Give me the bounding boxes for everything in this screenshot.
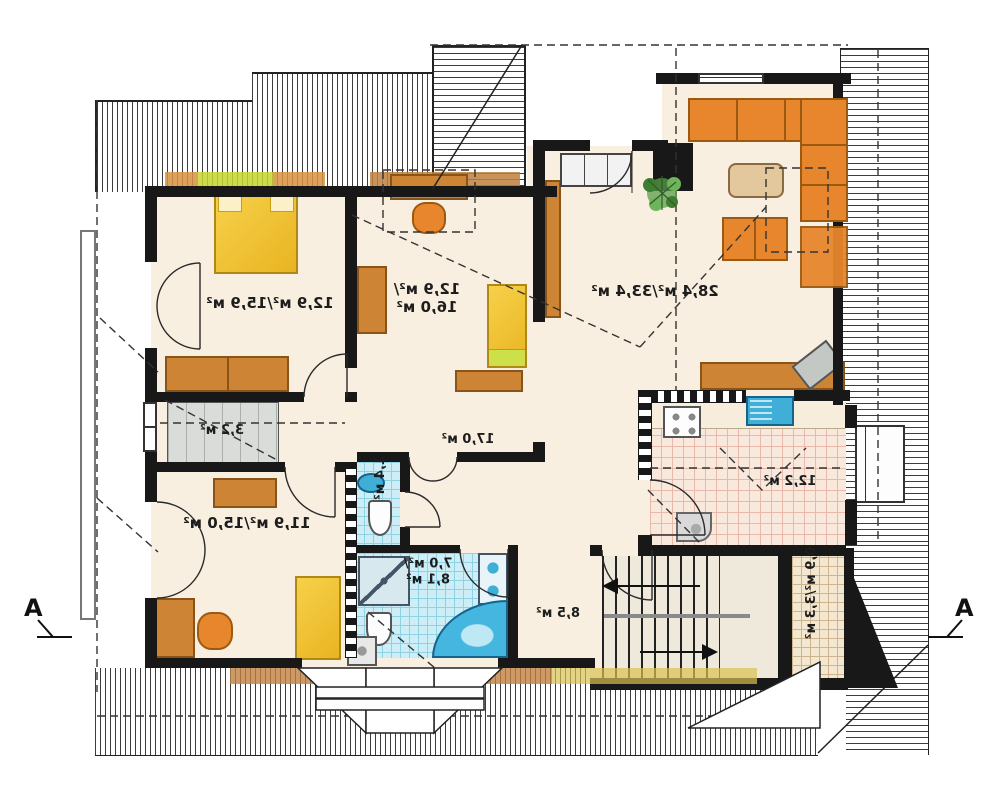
label-line: 8,1 м² <box>406 572 450 587</box>
double-bed <box>214 192 298 274</box>
coffee-table <box>728 163 784 198</box>
wall <box>400 527 410 553</box>
window-living-top <box>698 73 764 84</box>
roof-hatch-bottom-right <box>846 545 929 755</box>
room-label-hall: 17,0 м² <box>442 432 495 448</box>
sofa-living-vertical <box>800 98 848 222</box>
room-label-bedroom1: 12,9 м²/15,9 м² <box>206 294 334 312</box>
wall <box>145 452 157 502</box>
wall <box>157 392 304 402</box>
stairs-handrail <box>604 614 750 618</box>
wall <box>145 598 157 668</box>
wall <box>845 500 857 545</box>
wall <box>656 73 698 84</box>
wall <box>145 658 302 668</box>
label-line: 16,0 м² <box>396 298 457 316</box>
pillow <box>218 196 242 212</box>
wall <box>845 405 857 428</box>
sofa-bedroom1 <box>165 356 289 392</box>
wall <box>457 452 533 462</box>
chimney-block <box>653 143 693 191</box>
kitchen-wall-dotted-v <box>638 390 652 480</box>
wall <box>345 186 357 368</box>
room-label-living: 28,4 м²/33,4 м² <box>591 282 719 300</box>
single-bed-bedroom3 <box>295 576 341 660</box>
room-label-wc: 1,4 м² <box>373 456 389 500</box>
wall <box>145 186 157 262</box>
single-bed <box>487 284 527 368</box>
room-label-bathroom: 7,0 м²/ 8,1 м² <box>404 556 453 587</box>
boiler <box>676 512 712 542</box>
under-roof-strip <box>230 668 552 684</box>
room-label-stairs: 8,5 м² <box>536 606 580 622</box>
office-chair <box>412 202 446 234</box>
wc-toilet <box>368 500 392 536</box>
wall <box>533 442 545 462</box>
window-left-wall <box>143 402 157 452</box>
double-washbasin <box>478 553 508 605</box>
section-marker-a-left: A <box>24 594 43 622</box>
wall <box>533 140 545 322</box>
pillow <box>270 196 294 212</box>
eaves-edge-left <box>80 230 96 620</box>
dresser-bedroom2 <box>455 370 523 392</box>
under-roof-strip <box>197 172 273 187</box>
floor-plan: 12,9 м²/15,9 м² 12,9 м²/ 16,0 м² 28,4 м²… <box>0 0 1000 800</box>
wall <box>345 392 357 402</box>
label-line: 7,0 м²/ <box>404 556 453 571</box>
under-roof-strip <box>273 172 325 187</box>
entry-closet <box>560 153 632 187</box>
office-chair-bedroom3 <box>197 612 233 650</box>
wall <box>145 348 157 402</box>
room-label-pantry: 0,9 м²/3,3 м² <box>804 547 820 640</box>
room-label-bedroom2: 12,9 м²/ 16,0 м² <box>394 280 461 316</box>
bath-wall-dotted <box>345 462 357 658</box>
wall <box>508 545 518 553</box>
under-roof-strip <box>552 668 757 684</box>
blanket-strip <box>489 349 525 366</box>
wall <box>844 548 854 678</box>
wall <box>638 535 652 556</box>
room-label-kitchen: 12,2 м² <box>764 474 817 490</box>
room-label-bedroom3: 11,9 м²/15,0 м² <box>183 514 311 532</box>
section-marker-a-right: A <box>955 594 974 622</box>
stove <box>663 406 701 438</box>
wall <box>778 545 792 690</box>
kitchen-wall-dotted <box>638 390 746 403</box>
wall <box>652 545 790 556</box>
wall <box>400 462 410 492</box>
wall <box>508 553 518 660</box>
kitchen-sink <box>746 396 794 426</box>
wall <box>157 462 285 472</box>
shower <box>358 556 410 606</box>
armchair <box>722 217 788 261</box>
chaise-living <box>800 226 848 288</box>
wall <box>590 545 602 556</box>
under-roof-strip <box>165 172 197 187</box>
kitchen-window-bay <box>855 425 905 503</box>
wardrobe-bedroom2 <box>357 266 387 334</box>
room-label-wardrobe: 3,2 м² <box>200 423 244 439</box>
label-line: 12,9 м²/ <box>394 280 461 298</box>
tall-cabinet <box>545 180 561 318</box>
dresser-bedroom3 <box>213 478 277 508</box>
